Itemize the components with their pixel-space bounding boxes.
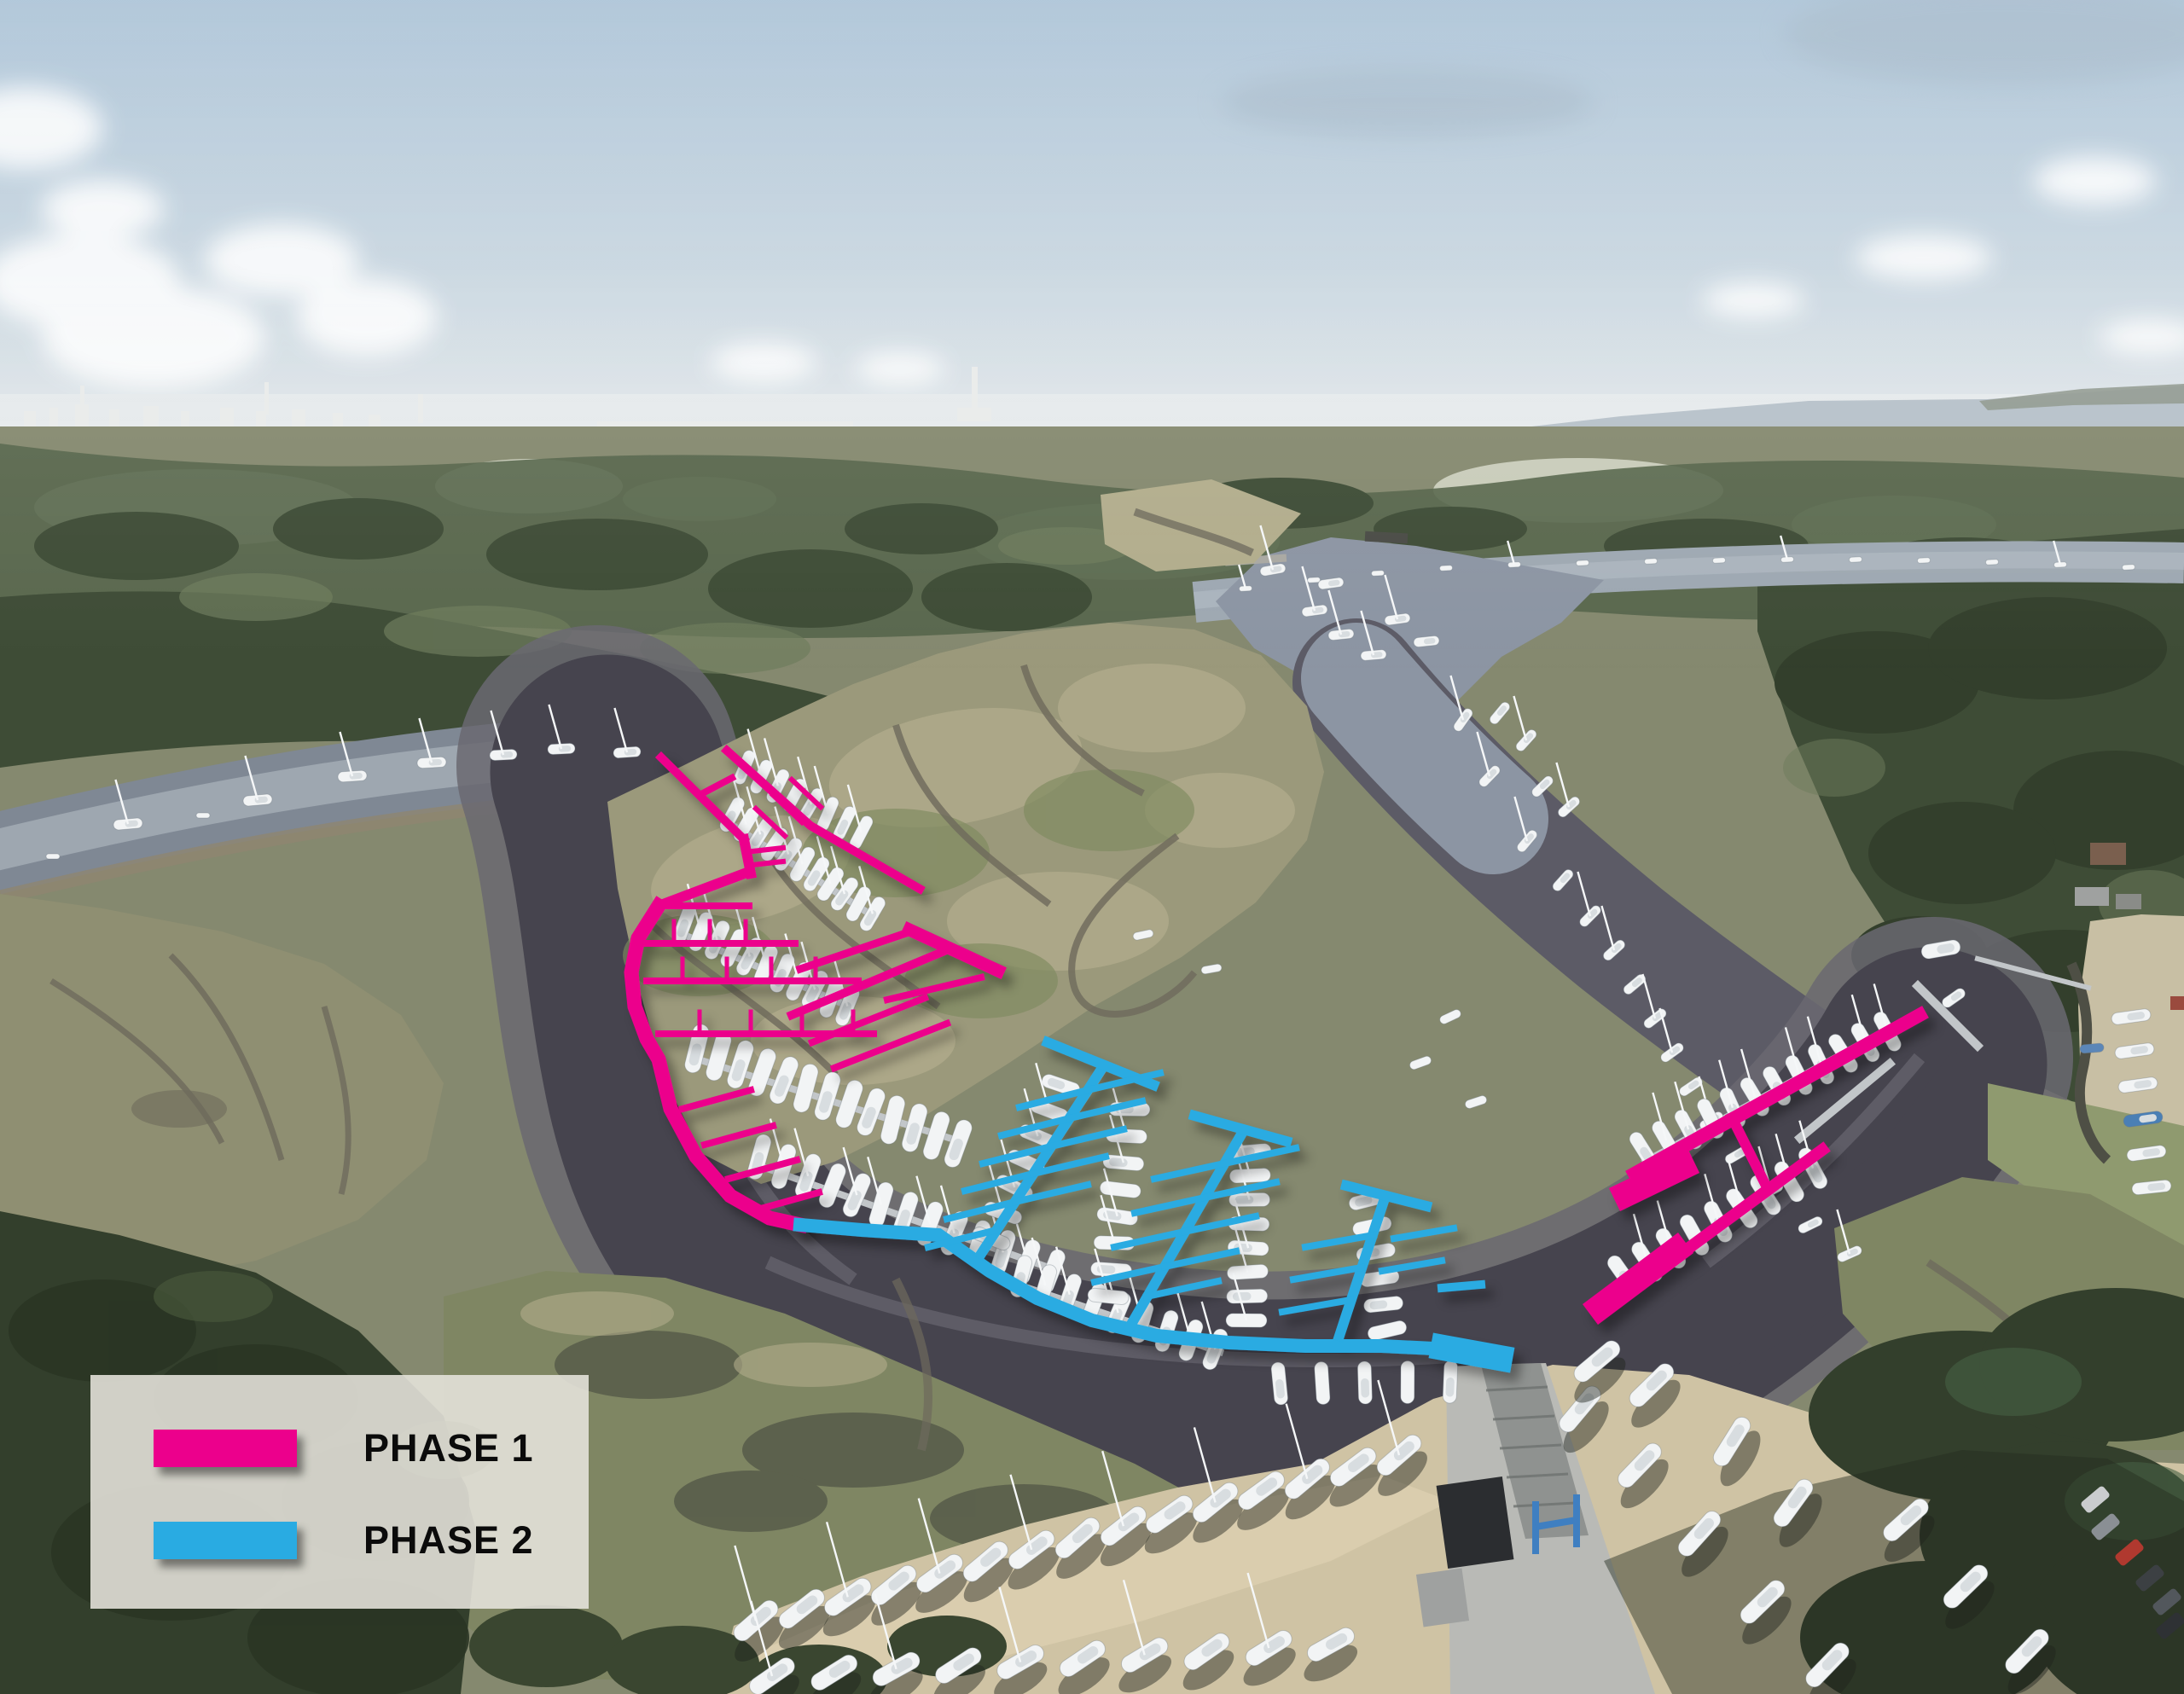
phase2-swatch xyxy=(154,1522,297,1559)
aerial-marina-plan: PHASE 1 PHASE 2 xyxy=(0,0,2184,1694)
phase2-label: PHASE 2 xyxy=(363,1518,534,1563)
legend-item-phase1: PHASE 1 xyxy=(154,1426,534,1471)
phase1-label: PHASE 1 xyxy=(363,1426,534,1471)
phase1-swatch xyxy=(154,1430,297,1467)
legend: PHASE 1 PHASE 2 xyxy=(90,1375,589,1609)
legend-item-phase2: PHASE 2 xyxy=(154,1518,534,1563)
